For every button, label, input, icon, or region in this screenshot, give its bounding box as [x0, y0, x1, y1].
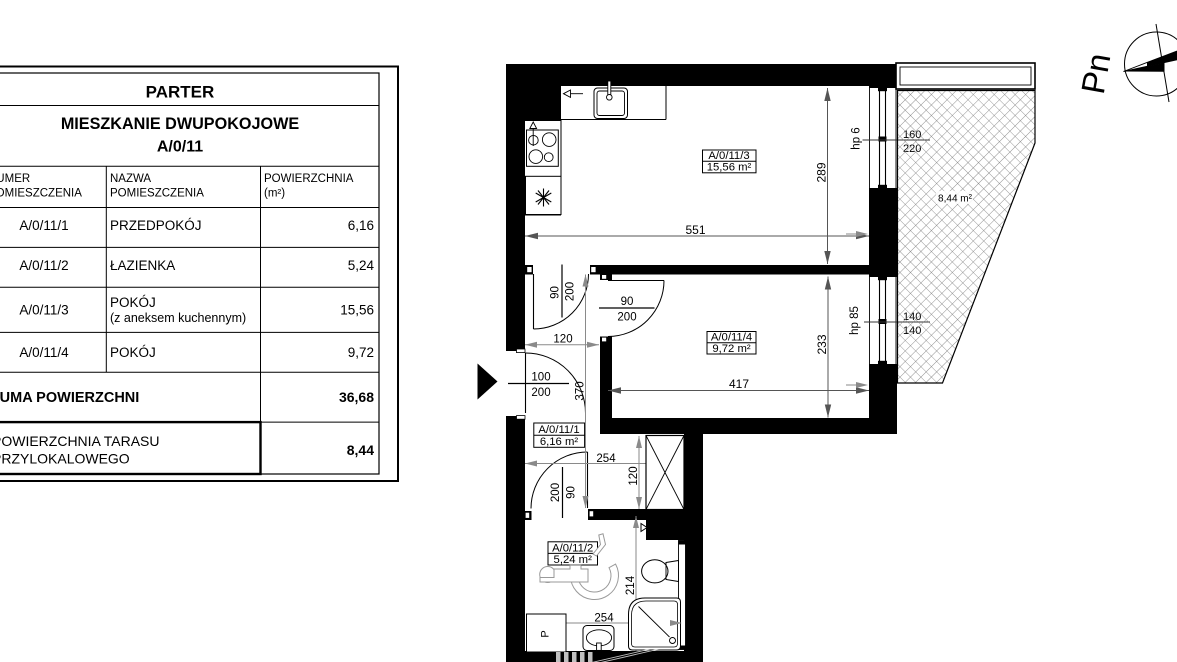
svg-text:90: 90: [566, 486, 578, 499]
svg-text:hp 6: hp 6: [851, 127, 863, 149]
svg-text:A/0/11/4: A/0/11/4: [711, 332, 752, 344]
svg-text:200: 200: [565, 282, 577, 301]
svg-text:POMIESZCZENIA: POMIESZCZENIA: [110, 188, 204, 200]
svg-text:MIESZKANIE DWUPOKOJOWE: MIESZKANIE DWUPOKOJOWE: [61, 115, 300, 133]
svg-text:Pn: Pn: [1074, 50, 1117, 96]
svg-text:36,68: 36,68: [339, 389, 374, 405]
svg-text:ŁAZIENKA: ŁAZIENKA: [110, 258, 175, 273]
svg-text:PARTER: PARTER: [146, 83, 215, 102]
svg-text:9,72: 9,72: [348, 345, 374, 360]
svg-text:120: 120: [553, 333, 572, 345]
svg-text:5,24 m²: 5,24 m²: [554, 554, 593, 566]
svg-text:NAZWA: NAZWA: [110, 173, 151, 185]
svg-text:200: 200: [550, 483, 562, 502]
svg-text:A/0/11/3: A/0/11/3: [19, 303, 68, 318]
svg-text:A/0/11/2: A/0/11/2: [19, 258, 68, 273]
svg-text:SUMA POWIERZCHNI: SUMA POWIERZCHNI: [0, 390, 139, 406]
svg-text:A/0/11/1: A/0/11/1: [19, 218, 68, 233]
svg-text:A/0/11/2: A/0/11/2: [552, 543, 593, 555]
svg-text:(z aneksem kuchennym): (z aneksem kuchennym): [110, 311, 246, 325]
svg-text:551: 551: [685, 223, 705, 237]
svg-text:(m²): (m²): [264, 188, 285, 200]
svg-text:15,56 m²: 15,56 m²: [707, 162, 752, 174]
svg-text:214: 214: [625, 575, 637, 595]
svg-text:90: 90: [621, 296, 634, 308]
svg-text:5,24: 5,24: [348, 258, 375, 273]
svg-text:90: 90: [550, 286, 562, 299]
svg-text:289: 289: [815, 162, 829, 182]
svg-text:A/0/11/4: A/0/11/4: [19, 345, 69, 360]
svg-text:A/0/11/1: A/0/11/1: [538, 424, 579, 436]
svg-text:POWIERZCHNIA TARASU: POWIERZCHNIA TARASU: [0, 433, 160, 449]
svg-text:A/0/11: A/0/11: [157, 139, 203, 156]
svg-text:A/0/11/3: A/0/11/3: [708, 150, 749, 162]
svg-text:200: 200: [531, 387, 550, 399]
svg-text:POWIERZCHNIA: POWIERZCHNIA: [264, 173, 354, 185]
svg-text:6,16: 6,16: [348, 218, 374, 233]
svg-text:PRZYLOKALOWEGO: PRZYLOKALOWEGO: [0, 451, 130, 467]
svg-text:NUMER: NUMER: [0, 173, 30, 185]
svg-text:233: 233: [815, 334, 829, 354]
svg-text:370: 370: [575, 381, 587, 400]
svg-text:254: 254: [596, 453, 616, 465]
svg-text:POKÓJ: POKÓJ: [110, 295, 156, 310]
svg-text:POKÓJ: POKÓJ: [110, 345, 156, 360]
svg-text:POMIESZCZENIA: POMIESZCZENIA: [0, 188, 82, 200]
svg-text:hp 85: hp 85: [849, 306, 861, 335]
svg-text:254: 254: [594, 613, 614, 625]
svg-text:200: 200: [617, 312, 636, 324]
svg-text:9,72 m²: 9,72 m²: [712, 343, 751, 355]
svg-text:120: 120: [628, 466, 640, 485]
svg-text:PRZEDPOKÓJ: PRZEDPOKÓJ: [110, 218, 202, 233]
svg-text:15,56: 15,56: [340, 303, 374, 318]
svg-text:6,16 m²: 6,16 m²: [540, 436, 579, 448]
svg-text:P: P: [540, 630, 552, 637]
svg-text:8,44: 8,44: [347, 442, 374, 458]
svg-text:417: 417: [729, 377, 749, 391]
svg-text:100: 100: [531, 372, 550, 384]
svg-text:8,44 m²: 8,44 m²: [938, 194, 973, 205]
